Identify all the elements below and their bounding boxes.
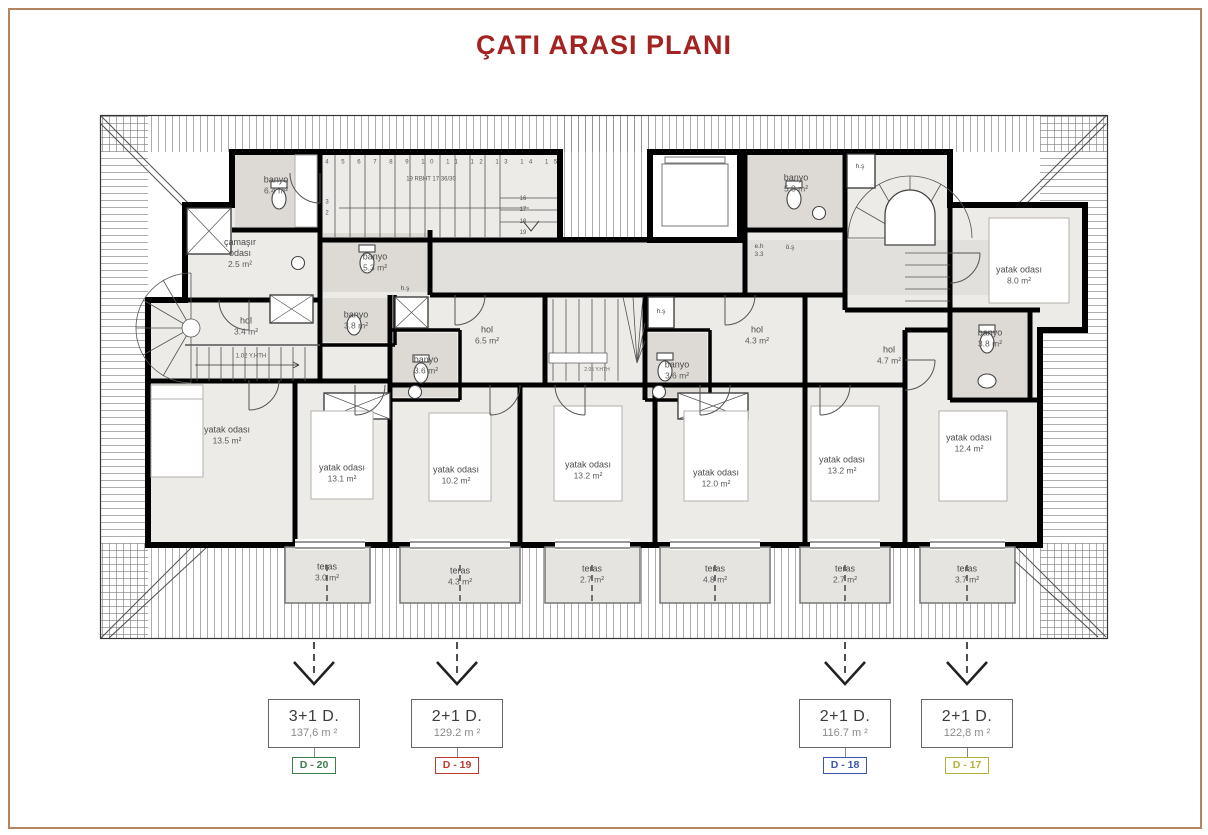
room-label-teras-3-7: teras3.7 m² [955, 564, 979, 585]
unit-card-d20: 3+1 D. 137,6 m ² D - 20 [269, 699, 359, 774]
room-label-os: ö.ş [786, 244, 795, 252]
room-label-teras-2-7-a: teras2.7 m² [580, 564, 604, 585]
room-label-hol-3-4: hol3.4 m² [234, 316, 258, 337]
down-arrow-icon [292, 642, 336, 690]
floor-plan: banyo6.4 m² çamaşır odası2.5 m² banyo5.3… [99, 113, 1110, 641]
page-title: ÇATI ARASI PLANI [0, 30, 1208, 61]
room-label-banyo-3-6-b: banyo3.6 m² [665, 360, 690, 381]
room-label-teras-2-7-b: teras2.7 m² [833, 564, 857, 585]
room-label-yatak-10-2: yatak odası10.2 m² [433, 465, 479, 486]
connector-line [967, 748, 968, 757]
unit-id-badge: D - 18 [823, 757, 868, 774]
unit-area: 122,8 m ² [944, 727, 990, 739]
room-label-banyo-3-8-right: banyo3.8 m² [978, 328, 1003, 349]
stair-note-mid: 2.05 Y.HTH [584, 367, 609, 373]
room-label-banyo-5-8: banyo5.8 m² [784, 173, 809, 194]
unit-type: 2+1 D. [942, 708, 993, 726]
room-label-hs-3: h.ş [856, 163, 865, 171]
room-label-yatak-13-5: yatak odası13.5 m² [204, 425, 250, 446]
unit-area: 129.2 m ² [434, 727, 480, 739]
room-label-hs-2: h.ş [657, 308, 666, 316]
unit-area: 137,6 m ² [291, 727, 337, 739]
unit-type: 3+1 D. [289, 708, 340, 726]
stair-tread-numbers-right: 16 17 18 19 [520, 194, 527, 240]
unit-box: 2+1 D. 116.7 m ² [799, 699, 891, 748]
room-label-banyo-5-3: banyo5.3 m² [363, 252, 388, 273]
down-arrow-icon [945, 642, 989, 690]
room-label-teras-4-3: teras4.3 m² [448, 566, 472, 587]
stair-note-top: 19 RBHT 17.36/30 [406, 176, 456, 183]
room-label-yatak-12-4: yatak odası12.4 m² [946, 433, 992, 454]
room-label-banyo-6-4: banyo6.4 m² [264, 175, 289, 196]
stair-tread-numbers-top: 4 5 6 7 8 9 10 11 12 13 14 15 [325, 159, 562, 166]
unit-card-d17: 2+1 D. 122,8 m ² D - 17 [922, 699, 1012, 774]
room-label-hol-6-5: hol6.5 m² [475, 325, 499, 346]
unit-card-d18: 2+1 D. 116.7 m ² D - 18 [800, 699, 890, 774]
unit-box: 2+1 D. 122,8 m ² [921, 699, 1013, 748]
room-label-banyo-3-6-a: banyo3.6 m² [414, 355, 439, 376]
room-labels: banyo6.4 m² çamaşır odası2.5 m² banyo5.3… [99, 113, 1110, 641]
unit-type: 2+1 D. [820, 708, 871, 726]
stair-tread-numbers-left: 3 2 [325, 198, 328, 221]
room-label-yatak-13-2-b: yatak odası13.2 m² [819, 455, 865, 476]
connector-line [845, 748, 846, 757]
room-label-hs-1: h.ş [401, 285, 410, 293]
unit-card-d19: 2+1 D. 129.2 m ² D - 19 [412, 699, 502, 774]
unit-box: 2+1 D. 129.2 m ² [411, 699, 503, 748]
page: { "title": "ÇATI ARASI PLANI", "colors":… [0, 0, 1208, 835]
room-label-yatak-13-2-a: yatak odası13.2 m² [565, 460, 611, 481]
unit-type: 2+1 D. [432, 708, 483, 726]
unit-box: 3+1 D. 137,6 m ² [268, 699, 360, 748]
room-label-hol-4-3: hol4.3 m² [745, 325, 769, 346]
stair-note-left: 1.02 Y.HTH [236, 353, 266, 360]
room-label-teras-3-0: teras3.0 m² [315, 562, 339, 583]
unit-id-badge: D - 20 [292, 757, 337, 774]
connector-line [457, 748, 458, 757]
unit-id-badge: D - 19 [435, 757, 480, 774]
room-label-camasir-odasi: çamaşır odası2.5 m² [224, 237, 256, 269]
room-label-hol-4-7: hol4.7 m² [877, 345, 901, 366]
down-arrow-icon [435, 642, 479, 690]
room-label-yatak-8-0: yatak odası8.0 m² [996, 265, 1042, 286]
connector-line [314, 748, 315, 757]
room-label-yatak-13-1: yatak odası13.1 m² [319, 463, 365, 484]
room-label-banyo-3-8-left: banyo3.8 m² [344, 310, 369, 331]
room-label-yatak-12-0: yatak odası12.0 m² [693, 468, 739, 489]
room-label-eh: e.h3.3 [754, 243, 763, 259]
unit-area: 116.7 m ² [822, 727, 868, 739]
down-arrow-icon [823, 642, 867, 690]
room-label-teras-4-8: teras4.8 m² [703, 564, 727, 585]
unit-id-badge: D - 17 [945, 757, 990, 774]
